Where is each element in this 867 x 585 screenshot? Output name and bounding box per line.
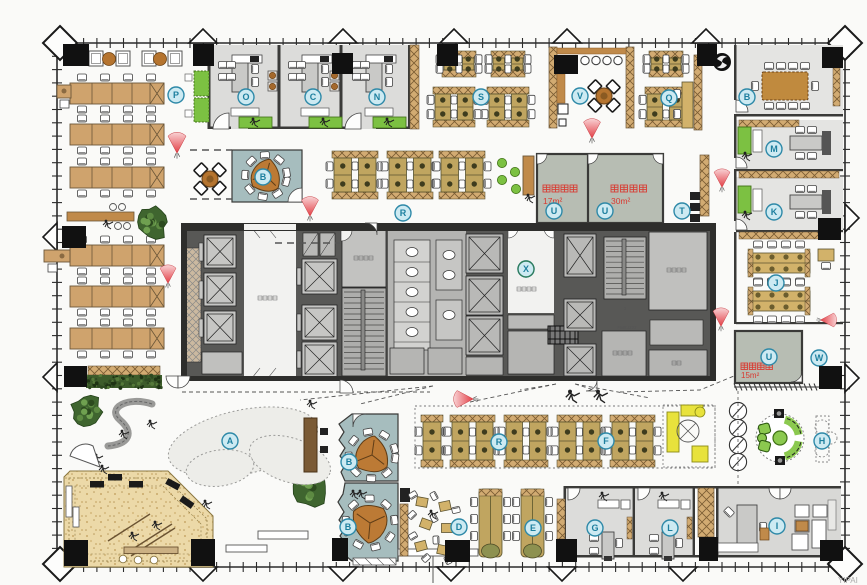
svg-text:E: E bbox=[530, 523, 536, 533]
svg-text:S: S bbox=[478, 92, 484, 102]
svg-text:B: B bbox=[346, 457, 353, 467]
svg-text:15m²: 15m² bbox=[741, 371, 760, 380]
svg-text:L: L bbox=[667, 523, 673, 533]
svg-text:YIPAI: YIPAI bbox=[838, 576, 858, 585]
svg-text:X: X bbox=[523, 264, 529, 274]
svg-text:U: U bbox=[602, 206, 609, 216]
svg-text:FMEJ222: FMEJ222 bbox=[617, 325, 637, 330]
svg-text:U: U bbox=[551, 206, 558, 216]
svg-text:V: V bbox=[577, 91, 583, 101]
svg-text:P: P bbox=[173, 90, 179, 100]
svg-text:Q: Q bbox=[665, 93, 672, 103]
svg-text:U: U bbox=[766, 352, 773, 362]
svg-text:H: H bbox=[819, 436, 826, 446]
svg-text:F: F bbox=[603, 436, 609, 446]
svg-text:B: B bbox=[744, 92, 751, 102]
svg-text:B: B bbox=[260, 172, 267, 182]
svg-text:I: I bbox=[776, 521, 779, 531]
svg-text:B: B bbox=[345, 522, 352, 532]
svg-text:D: D bbox=[456, 522, 463, 532]
svg-text:A: A bbox=[227, 436, 234, 446]
svg-text:G: G bbox=[591, 523, 598, 533]
svg-text:J: J bbox=[773, 278, 778, 288]
svg-text:R: R bbox=[496, 437, 503, 447]
svg-text:W: W bbox=[815, 353, 824, 363]
svg-text:M: M bbox=[770, 144, 778, 154]
svg-text:N: N bbox=[374, 92, 381, 102]
svg-text:T: T bbox=[679, 206, 685, 216]
svg-text:30m²: 30m² bbox=[611, 196, 631, 206]
svg-text:C: C bbox=[310, 92, 317, 102]
svg-text:K: K bbox=[771, 207, 778, 217]
svg-text:R: R bbox=[400, 208, 407, 218]
svg-text:O: O bbox=[242, 92, 249, 102]
